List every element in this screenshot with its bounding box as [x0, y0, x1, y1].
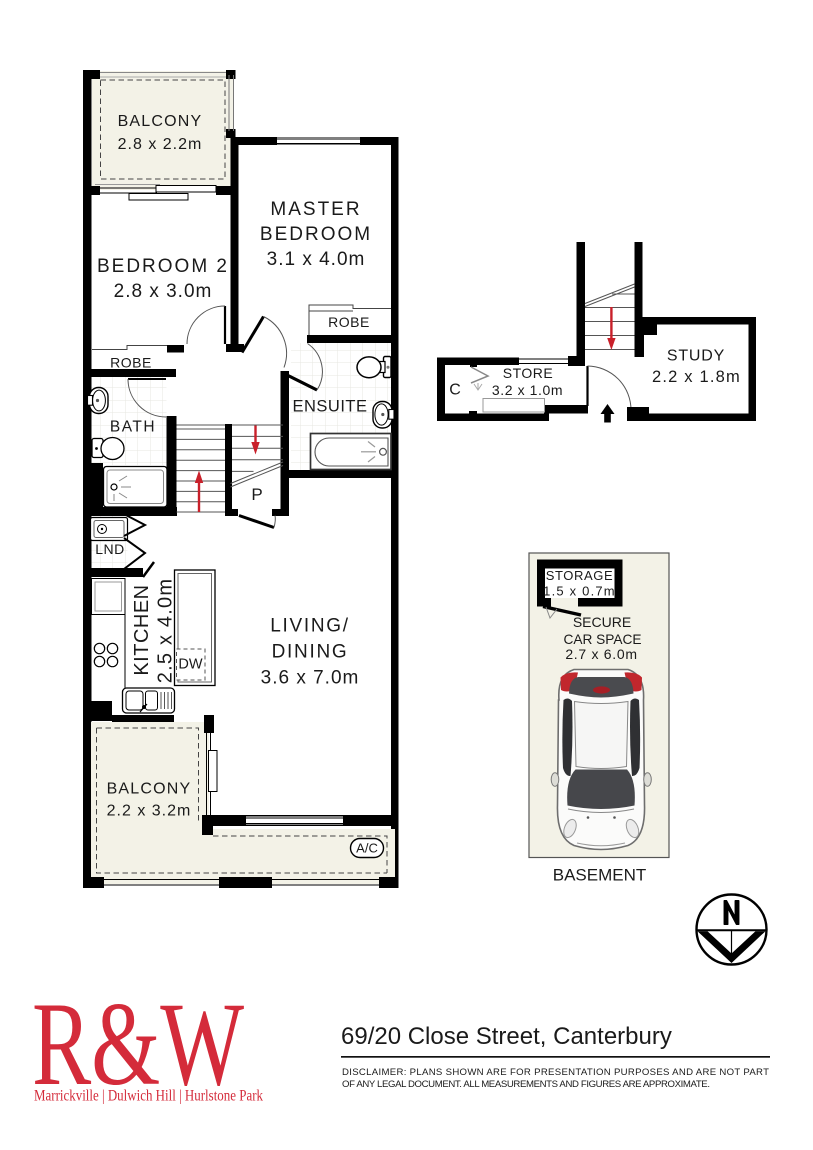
svg-text:2.7 x 6.0m: 2.7 x 6.0m: [565, 646, 637, 662]
svg-text:MASTER: MASTER: [270, 199, 361, 220]
svg-text:P: P: [251, 485, 262, 504]
svg-text:2.2 x 3.2m: 2.2 x 3.2m: [107, 803, 192, 820]
svg-text:DW: DW: [178, 657, 202, 673]
svg-text:2.5 x 4.0m: 2.5 x 4.0m: [155, 578, 177, 683]
svg-text:3.1 x 4.0m: 3.1 x 4.0m: [267, 249, 366, 270]
svg-text:BALCONY: BALCONY: [107, 781, 192, 798]
svg-text:DISCLAIMER: PLANS SHOWN ARE F: DISCLAIMER: PLANS SHOWN ARE FOR PRESENTA…: [342, 1067, 769, 1078]
svg-text:BALCONY: BALCONY: [118, 113, 203, 130]
svg-text:SECURE: SECURE: [573, 614, 631, 630]
svg-text:3.2 x 1.0m: 3.2 x 1.0m: [492, 382, 563, 398]
svg-text:DINING: DINING: [272, 642, 349, 663]
svg-text:ROBE: ROBE: [328, 314, 370, 330]
svg-text:3.6 x 7.0m: 3.6 x 7.0m: [261, 668, 360, 689]
svg-text:2.8 x 2.2m: 2.8 x 2.2m: [118, 136, 203, 153]
svg-text:C: C: [449, 382, 461, 399]
svg-text:LIVING/: LIVING/: [270, 616, 349, 637]
svg-text:A/C: A/C: [356, 841, 378, 856]
svg-text:OF ANY LEGAL DOCUMENT. ALL MEA: OF ANY LEGAL DOCUMENT. ALL MEASUREMENTS …: [342, 1079, 710, 1090]
svg-text:STUDY: STUDY: [667, 348, 725, 365]
svg-text:69/20 Close Street, Canterbury: 69/20 Close Street, Canterbury: [341, 1023, 672, 1050]
svg-text:2.2 x 1.8m: 2.2 x 1.8m: [652, 368, 741, 386]
svg-text:ENSUITE: ENSUITE: [292, 398, 367, 416]
svg-text:LND: LND: [95, 541, 125, 557]
svg-text:STORAGE: STORAGE: [546, 568, 614, 583]
svg-text:BASEMENT: BASEMENT: [553, 866, 647, 885]
svg-text:KITCHEN: KITCHEN: [131, 584, 153, 675]
svg-text:2.8 x 3.0m: 2.8 x 3.0m: [114, 281, 213, 302]
svg-text:BEDROOM: BEDROOM: [260, 224, 372, 245]
svg-text:ROBE: ROBE: [110, 355, 152, 371]
svg-text:BEDROOM 2: BEDROOM 2: [97, 256, 229, 277]
svg-text:1.5 x 0.7m: 1.5 x 0.7m: [543, 584, 616, 599]
svg-text:STORE: STORE: [503, 365, 553, 381]
svg-text:CAR SPACE: CAR SPACE: [563, 632, 641, 647]
svg-text:Marrickville | Dulwich Hill |: Marrickville | Dulwich Hill | Hurlstone …: [34, 1088, 263, 1105]
svg-text:BATH: BATH: [110, 419, 156, 436]
